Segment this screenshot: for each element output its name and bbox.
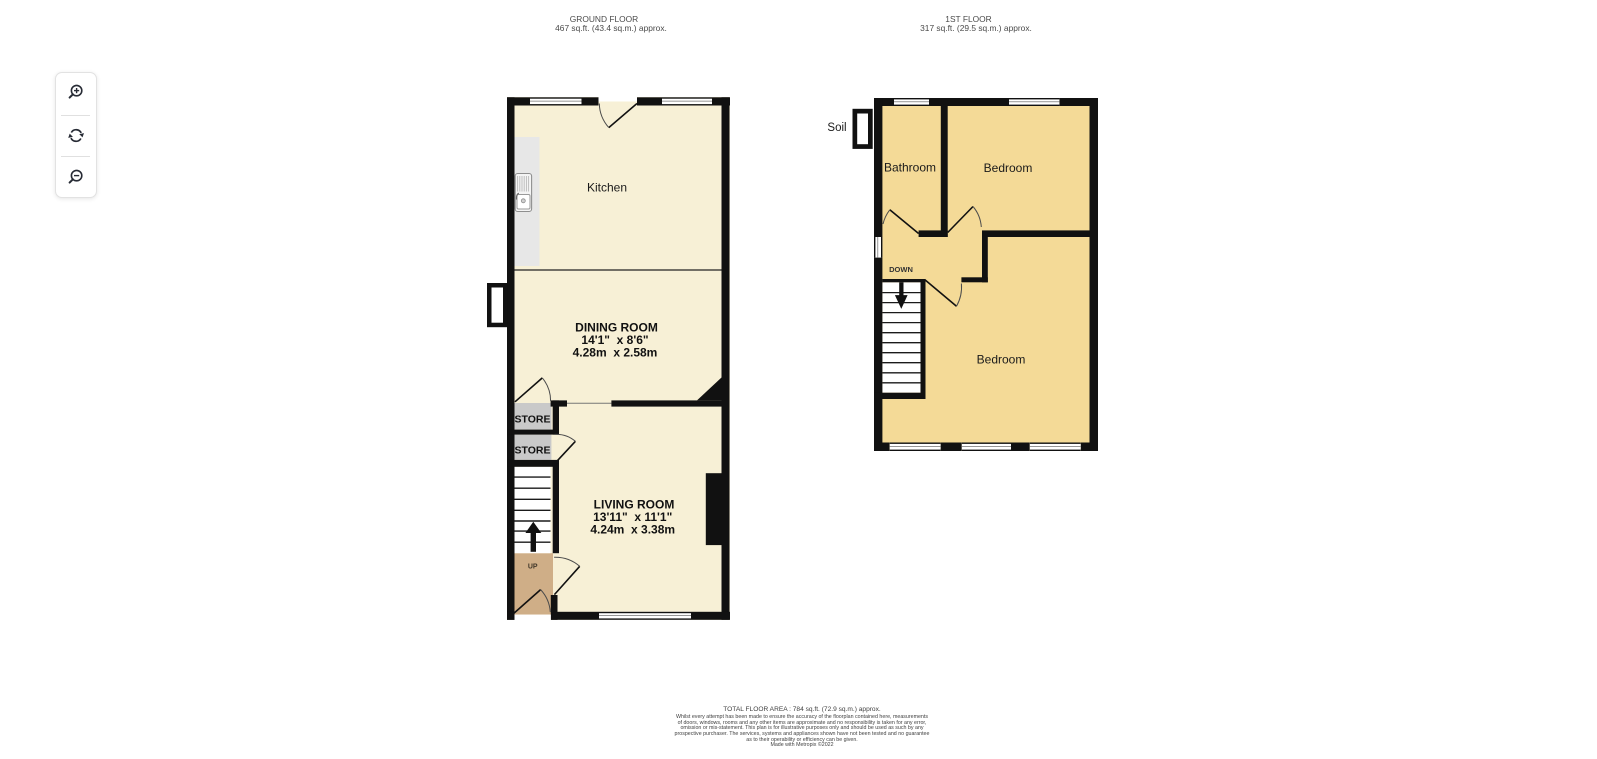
svg-text:Bedroom: Bedroom bbox=[984, 161, 1033, 175]
svg-text:DOWN: DOWN bbox=[889, 265, 913, 274]
svg-text:STORE: STORE bbox=[515, 413, 551, 425]
svg-text:Bedroom: Bedroom bbox=[977, 353, 1026, 367]
svg-text:Kitchen: Kitchen bbox=[587, 181, 627, 195]
svg-text:Bathroom: Bathroom bbox=[884, 161, 936, 175]
svg-text:Soil: Soil bbox=[827, 122, 846, 134]
svg-text:UP: UP bbox=[528, 564, 538, 571]
svg-text:4.28m x 2.58m: 4.28m x 2.58m bbox=[573, 346, 658, 360]
svg-text:4.24m x 3.38m: 4.24m x 3.38m bbox=[590, 523, 675, 537]
svg-text:STORE: STORE bbox=[515, 445, 551, 457]
